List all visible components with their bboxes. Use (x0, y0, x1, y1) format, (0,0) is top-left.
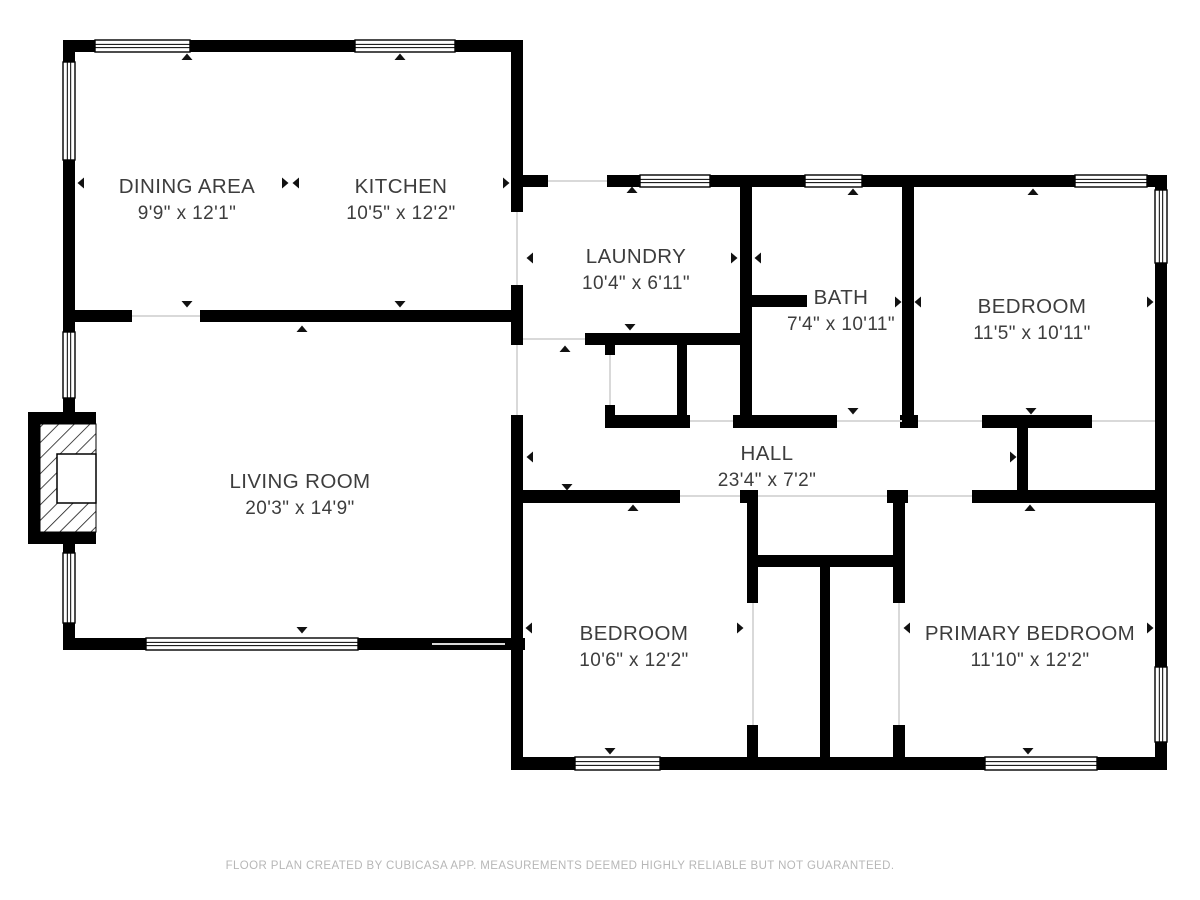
wall-segment (893, 503, 905, 603)
door-opening (837, 420, 902, 422)
door-opening (908, 495, 972, 497)
right-arrow-icon (731, 253, 738, 264)
front-door-landing (57, 454, 96, 503)
down-arrow-icon (182, 301, 193, 308)
door-opening (690, 420, 733, 422)
down-arrow-icon (1026, 408, 1037, 415)
door-opening (548, 180, 607, 182)
right-arrow-icon (895, 297, 902, 308)
room-label: BATH (814, 286, 869, 309)
wall-segment (585, 333, 743, 345)
wall-segment (893, 725, 905, 757)
room-dims: 11'10" x 12'2" (971, 650, 1090, 671)
room-dims: 23'4" x 7'2" (718, 470, 816, 491)
up-arrow-icon (627, 187, 638, 194)
left-arrow-icon (293, 178, 300, 189)
window-icon (95, 40, 190, 52)
left-arrow-icon (527, 452, 534, 463)
wall-segment (523, 490, 680, 503)
room-dims: 11'5" x 10'11" (973, 323, 1091, 344)
down-arrow-icon (1023, 748, 1034, 755)
room-label: HALL (741, 442, 794, 465)
wall-segment (511, 415, 523, 770)
footer-disclaimer: FLOOR PLAN CREATED BY CUBICASA APP. MEAS… (0, 860, 1120, 872)
wall-segment (902, 187, 914, 415)
room-dims: 10'5" x 12'2" (346, 203, 455, 224)
right-arrow-icon (1147, 297, 1154, 308)
room-label: DINING AREA (119, 175, 256, 198)
window-icon (805, 175, 862, 187)
wall-segment (511, 285, 523, 345)
wall-segment (747, 725, 758, 757)
room-dims: 7'4" x 10'11" (787, 314, 895, 335)
up-arrow-icon (628, 505, 639, 512)
window-icon (355, 40, 455, 52)
door-opening (516, 212, 518, 285)
wall-segment (900, 415, 918, 428)
up-arrow-icon (848, 189, 859, 196)
wall-segment (605, 415, 690, 428)
door-opening (516, 345, 518, 415)
room-label: LAUNDRY (586, 245, 686, 268)
wall-segment (75, 310, 132, 322)
left-arrow-icon (526, 623, 533, 634)
right-arrow-icon (1147, 623, 1154, 634)
window-icon (63, 332, 75, 398)
room-label: PRIMARY BEDROOM (925, 622, 1135, 645)
door-opening (898, 603, 900, 725)
up-arrow-icon (560, 346, 571, 353)
room-label: LIVING ROOM (229, 470, 370, 493)
wall-segment (740, 295, 807, 307)
wall-segment (605, 405, 615, 415)
right-arrow-icon (1010, 452, 1017, 463)
up-arrow-icon (182, 54, 193, 61)
door-opening (132, 315, 200, 317)
right-arrow-icon (282, 178, 289, 189)
wall-segment (733, 415, 837, 428)
wall-segment (740, 490, 758, 503)
room-label: KITCHEN (355, 175, 448, 198)
room-dims: 10'4" x 6'11" (582, 273, 690, 294)
down-arrow-icon (395, 301, 406, 308)
window-icon (63, 62, 75, 160)
down-arrow-icon (605, 748, 616, 755)
wall-segment (1017, 428, 1028, 492)
door-opening (758, 495, 887, 497)
up-arrow-icon (297, 326, 308, 333)
wall-segment (605, 345, 615, 355)
left-arrow-icon (755, 253, 762, 264)
window-icon (1075, 175, 1147, 187)
left-arrow-icon (904, 623, 911, 634)
wall-segment (982, 415, 1092, 428)
left-arrow-icon (78, 178, 85, 189)
window-icon (575, 757, 660, 770)
up-arrow-icon (395, 54, 406, 61)
up-arrow-icon (1028, 189, 1039, 196)
left-arrow-icon (915, 297, 922, 308)
down-arrow-icon (297, 627, 308, 634)
left-arrow-icon (527, 253, 534, 264)
down-arrow-icon (625, 324, 636, 331)
door-opening (680, 495, 740, 497)
window-icon (146, 638, 358, 650)
window-icon (1155, 667, 1167, 742)
room-dims: 10'6" x 12'2" (579, 650, 688, 671)
window-icon (985, 757, 1097, 770)
window-icon (640, 175, 710, 187)
right-arrow-icon (737, 623, 744, 634)
room-label: BEDROOM (978, 295, 1087, 318)
room-label: BEDROOM (580, 622, 689, 645)
wall-segment (511, 40, 523, 212)
right-arrow-icon (503, 178, 510, 189)
down-arrow-icon (848, 408, 859, 415)
floor-plan-canvas: DINING AREA9'9" x 12'1"KITCHEN10'5" x 12… (0, 0, 1200, 900)
window-icon (63, 553, 75, 623)
wall-segment (200, 310, 523, 322)
room-dims: 9'9" x 12'1" (138, 203, 236, 224)
window-icon (1155, 190, 1167, 263)
wall-segment (972, 490, 1158, 503)
door-opening (752, 603, 754, 725)
door-opening (1092, 420, 1155, 422)
door-opening (523, 338, 585, 340)
door-opening (609, 355, 611, 405)
room-dims: 20'3" x 14'9" (245, 498, 354, 519)
wall-segment (677, 345, 687, 423)
door-opening (432, 643, 505, 645)
wall-segment (753, 555, 897, 567)
entry-stoop (28, 412, 96, 544)
wall-segment (747, 503, 758, 603)
up-arrow-icon (1025, 505, 1036, 512)
wall-segment (887, 490, 908, 503)
wall-segment (523, 175, 548, 187)
door-opening (918, 420, 982, 422)
floor-plan: DINING AREA9'9" x 12'1"KITCHEN10'5" x 12… (0, 0, 1200, 900)
wall-segment (820, 567, 830, 757)
down-arrow-icon (562, 484, 573, 491)
